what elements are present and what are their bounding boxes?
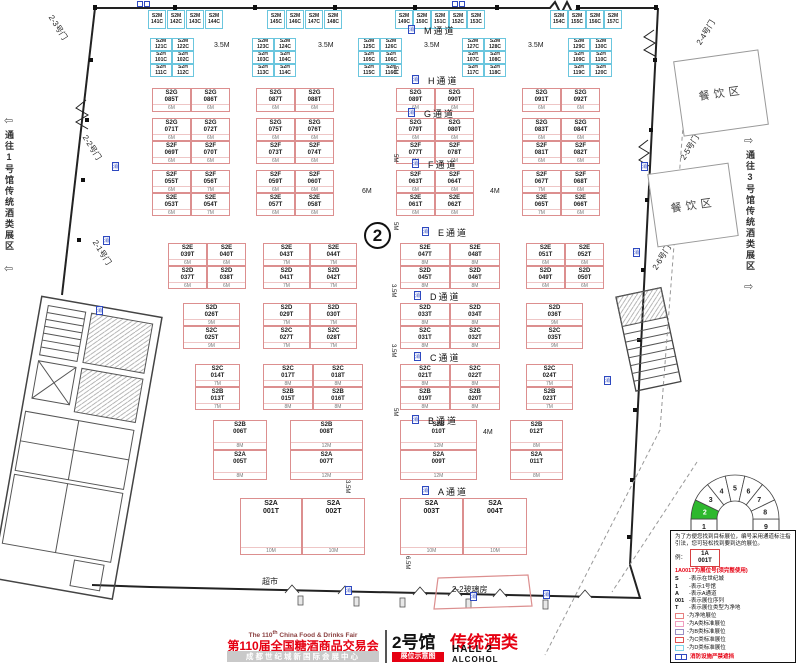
aisle-label-H: H通道 <box>428 74 459 87</box>
legend-example-label: 例： <box>675 555 686 562</box>
dimension-label: 4M <box>490 188 500 195</box>
hall-name-cn: 2号馆 <box>392 628 435 653</box>
aisle-label-G: G通道 <box>424 107 455 120</box>
aisle-label-F: F通道 <box>428 158 458 171</box>
corridor-right-label: 通往3号馆传统酒类展区 <box>744 150 757 272</box>
dimension-label: 3.5M <box>390 344 396 357</box>
aisle-label-M: M通道 <box>424 24 456 37</box>
fire-equipment-icon: 消 <box>96 306 103 315</box>
dining-area-2: 餐饮区 <box>647 163 739 248</box>
corridor-right-arrow-bottom: ⇨ <box>744 280 753 293</box>
dimension-label: 3.5M <box>424 42 440 49</box>
fire-equipment-icon: 消 <box>414 291 421 300</box>
hall-number-circle: 2 <box>364 222 391 249</box>
footer: The 110th China Food & Drinks Fair 第110届… <box>0 626 798 666</box>
dimension-label: 4M <box>483 429 493 436</box>
legend-item: A-表示A通道 <box>675 591 791 598</box>
hall2-floorplan: 234567819 S2G085T6MS2G086T6MS2G087T6MS2G… <box>0 0 798 666</box>
door-label-2-4号门: 2-4号门 <box>694 18 718 47</box>
hall-type-en: ALCOHOL <box>452 655 499 664</box>
legend-item: 1-表示1号馆 <box>675 584 791 591</box>
dimension-label: 3.5M <box>318 42 334 49</box>
corridor-left-arrow-top: ⇦ <box>4 114 13 127</box>
hall-name-en: HALL 2 <box>452 644 493 655</box>
dimension-label: 5M <box>392 66 398 74</box>
fire-equipment-icon: 消 <box>604 376 611 385</box>
fire-equipment-icon: 消 <box>412 75 419 84</box>
dimension-label: 3.5M <box>528 42 544 49</box>
corridor-left-label: 通往1号馆传统酒类展区 <box>3 130 16 252</box>
fire-equipment-icon: 消 <box>633 248 640 257</box>
dimension-label: 5M <box>392 222 398 230</box>
fire-equipment-icon: 消 <box>414 352 421 361</box>
fire-equipment-icon: 消 <box>641 162 648 171</box>
fire-equipment-icon: 消 <box>112 162 119 171</box>
footer-divider <box>385 630 387 663</box>
fire-equipment-icon: 消 <box>470 592 477 601</box>
legend-sample-line2: 001T <box>691 558 719 565</box>
dimension-label: 6.5M <box>404 556 410 569</box>
aisle-label-C: C通道 <box>430 351 461 364</box>
dimension-label: 3.5M <box>344 480 350 493</box>
corridor-right-arrow-top: ⇨ <box>744 134 753 147</box>
door-label-2-1号门: 2-1号门 <box>90 238 114 267</box>
legend-sample-booth: 1A 001T <box>690 549 720 567</box>
fire-equipment-icon: 消 <box>408 25 415 34</box>
door-sensor-icon <box>452 1 465 7</box>
dimension-label: 6M <box>362 188 372 195</box>
dimension-label: 3.5M <box>214 42 230 49</box>
fire-equipment-icon: 消 <box>345 586 352 595</box>
door-sensor-icon <box>137 1 150 7</box>
legend-item: S-表示在世纪城 <box>675 576 791 583</box>
legend-intro: 为了方便您找到目标展位，编号采用通道标注指引法，您可轻松找到要到达的展位。 <box>675 534 791 548</box>
supermarket-label: 超市 <box>262 576 278 587</box>
fire-equipment-icon: 消 <box>412 415 419 424</box>
fire-equipment-icon: 消 <box>543 590 550 599</box>
legend-items: S-表示在世纪城1-表示1号馆A-表示A通道001-表示展位序列T-表示展位类型… <box>675 576 791 611</box>
legend-item: 001-表示展位序列 <box>675 598 791 605</box>
legend-swatch-row: -为净地展位 <box>675 613 791 620</box>
dimension-label: 3.5M <box>390 284 396 297</box>
fire-equipment-icon: 消 <box>103 236 110 245</box>
map-badge: 展位示意图 <box>392 652 444 662</box>
corridor-left-arrow-bottom: ⇦ <box>4 262 13 275</box>
legend-item: T-表示展位类型为净地 <box>675 605 791 612</box>
aisle-label-D: D通道 <box>430 290 461 303</box>
dimension-label: 5M <box>392 154 398 162</box>
door-label-2-3号门: 2-3号门 <box>46 13 70 42</box>
legend-title: 1A001T为展位号(须完整使用) <box>675 568 791 575</box>
door-label-2-6号门: 2-6号门 <box>650 243 674 272</box>
legend-sample-line1: 1A <box>691 551 719 558</box>
aisle-label-B: B通道 <box>428 414 458 427</box>
door-label-2-5号门: 2-5号门 <box>678 133 702 162</box>
aisle-label-E: E通道 <box>438 226 468 239</box>
aisle-label-A: A通道 <box>438 485 468 498</box>
door-label-2-2号门: 2-2号门 <box>80 133 104 162</box>
fire-equipment-icon: 消 <box>408 108 415 117</box>
fire-equipment-icon: 消 <box>422 486 429 495</box>
venue-label: 成都世纪城新国际会展中心 <box>227 651 379 662</box>
dimension-label: 5M <box>392 408 398 416</box>
fire-equipment-icon: 消 <box>422 227 429 236</box>
dining-area-1: 餐饮区 <box>673 49 769 136</box>
fire-equipment-icon: 消 <box>412 159 419 168</box>
